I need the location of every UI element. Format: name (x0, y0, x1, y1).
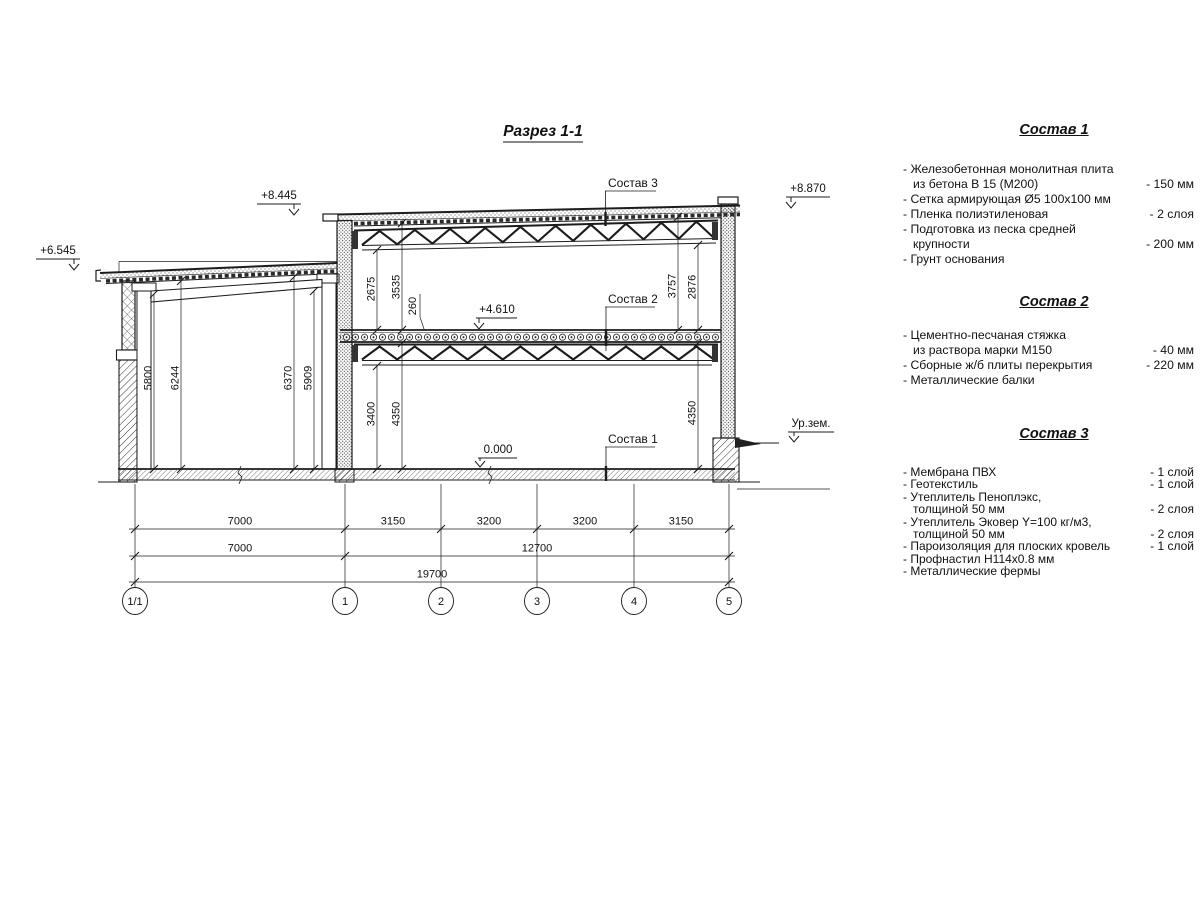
panel2-row: - Металлические балки (880, 373, 1200, 388)
elevation-6545: +6.545 (36, 245, 80, 270)
drawing-title-text: Разрез 1-1 (503, 123, 583, 140)
dim-5800: 5800 (143, 366, 155, 390)
panel1-heading: Состав 1 (880, 122, 1200, 138)
layer-label: - Пленка полиэтиленовая (903, 207, 1048, 221)
layer-value: - 40 мм (1153, 343, 1194, 358)
horizontal-dimensions: 7000 3150 3200 3200 3150 7000 12700 1970… (129, 484, 735, 588)
elevation-8445-label: +8.445 (261, 190, 297, 202)
dim-4350-right: 4350 (687, 401, 699, 425)
axis-label-1: 1 (342, 596, 348, 608)
dim-19700: 19700 (417, 569, 448, 581)
composition-panel-2: Состав 2 - Цементно-песчаная стяжка из р… (880, 294, 1200, 388)
callout-sostav2-label: Состав 2 (608, 292, 658, 306)
layer-label: - Железобетонная монолитная плита (903, 162, 1114, 176)
panel2-heading: Состав 2 (880, 294, 1200, 310)
ground-level-mark: Ур.зем. (788, 418, 834, 442)
layer-value: - 1 слой (1150, 540, 1194, 552)
panel3-row: - Металлические фермы (880, 565, 1200, 577)
axis-label-2: 2 (438, 596, 444, 608)
dim-3535: 3535 (391, 275, 403, 299)
left-wall-foundation (119, 360, 137, 482)
floor2-slab (340, 330, 721, 342)
panel1-row: крупности- 200 мм (880, 237, 1200, 252)
layer-label: - Сборные ж/б плиты перекрытия (903, 358, 1092, 372)
layer-label: - Цементно-песчаная стяжка (903, 328, 1066, 342)
panel2-row: - Цементно-песчаная стяжка (880, 328, 1200, 343)
dim-3150-b: 3150 (669, 516, 693, 528)
axis-label-3: 3 (534, 596, 540, 608)
dim-3200-b: 3200 (573, 516, 597, 528)
roof-beam (151, 280, 322, 303)
dim-6370: 6370 (283, 366, 295, 390)
ground-level-label: Ур.зем. (791, 418, 830, 430)
elevation-8870: +8.870 (786, 183, 830, 208)
layer-value: - 2 слоя (1150, 207, 1194, 222)
dim-3757: 3757 (667, 274, 679, 298)
dim-3150-a: 3150 (381, 516, 405, 528)
panel1-row: - Сетка армирующая Ø5 100х100 мм (880, 192, 1200, 207)
panel2-row: - Сборные ж/б плиты перекрытия- 220 мм (880, 358, 1200, 373)
panel3-heading: Состав 3 (880, 426, 1200, 442)
panel1-row: - Грунт основания (880, 252, 1200, 267)
dim-7000-b: 7000 (228, 543, 252, 555)
layer-label: крупности (913, 237, 970, 251)
layer-label: - Грунт основания (903, 252, 1004, 266)
drawing-sheet: Разрез 1-1 (0, 0, 1200, 900)
composition-panel-3: Состав 3 - Мембрана ПВХ- 1 слой - Геотек… (880, 426, 1200, 578)
elevation-8445: +8.445 (257, 190, 301, 215)
layer-value: - 1 слой (1150, 478, 1194, 490)
dim-260: 260 (407, 297, 419, 315)
tall-right-wall (721, 204, 735, 438)
callout-sostav1-label: Состав 1 (608, 432, 658, 446)
dim-12700: 12700 (522, 543, 553, 555)
dim-4350-left: 4350 (391, 402, 403, 426)
tall-left-wall (337, 221, 352, 470)
dim-2675: 2675 (366, 277, 378, 301)
tall-building (323, 197, 830, 489)
left-parapet-cap (323, 214, 338, 221)
axis-bubbles: 1/1 1 2 3 4 5 (123, 588, 742, 615)
ground-floor-slab (118, 466, 735, 484)
right-parapet-cap (718, 197, 738, 204)
layer-label: из бетона В 15 (М200) (913, 177, 1038, 191)
elevation-zero: 0.000 (475, 444, 517, 467)
panel1-row: - Железобетонная монолитная плита (880, 162, 1200, 177)
layer-label: из раствора марки М150 (913, 343, 1052, 357)
elevation-4610: +4.610 (474, 304, 517, 329)
composition-panel-1: Состав 1 - Железобетонная монолитная пли… (880, 122, 1200, 267)
layer-value: - 150 мм (1146, 177, 1194, 192)
elevation-6545-label: +6.545 (40, 245, 76, 257)
layer-value: - 2 слоя (1150, 503, 1194, 515)
dim-3400: 3400 (366, 402, 378, 426)
dim-5909: 5909 (303, 366, 315, 390)
elevation-4610-label: +4.610 (479, 304, 515, 316)
layer-label: - Сетка армирующая Ø5 100х100 мм (903, 192, 1111, 206)
dim-2876: 2876 (687, 275, 699, 299)
elevation-8870-label: +8.870 (790, 183, 826, 195)
dim-6244: 6244 (170, 366, 182, 390)
layer-value: - 200 мм (1146, 237, 1194, 252)
axis1-column (317, 274, 339, 469)
panel1-row: из бетона В 15 (М200)- 150 мм (880, 177, 1200, 192)
dim-3200-a: 3200 (477, 516, 501, 528)
panel2-row: из раствора марки М150- 40 мм (880, 343, 1200, 358)
callout-sostav3-label: Состав 3 (608, 176, 658, 190)
panel1-row: - Подготовка из песка средней (880, 222, 1200, 237)
layer-value: - 220 мм (1146, 358, 1194, 373)
layer-label: - Подготовка из песка средней (903, 222, 1076, 236)
axis-label-1-1: 1/1 (127, 596, 142, 608)
axis-label-5: 5 (726, 596, 732, 608)
dim-7000-a: 7000 (228, 516, 252, 528)
elevation-zero-label: 0.000 (484, 444, 513, 456)
layer-label: - Металлические балки (903, 373, 1035, 387)
middle-truss (352, 345, 718, 366)
drawing-title: Разрез 1-1 (503, 123, 583, 142)
axis-label-4: 4 (631, 596, 637, 608)
tall-roof (323, 206, 740, 227)
layer-label: - Металлические фермы (903, 564, 1040, 578)
panel1-row: - Пленка полиэтиленовая- 2 слоя (880, 207, 1200, 222)
